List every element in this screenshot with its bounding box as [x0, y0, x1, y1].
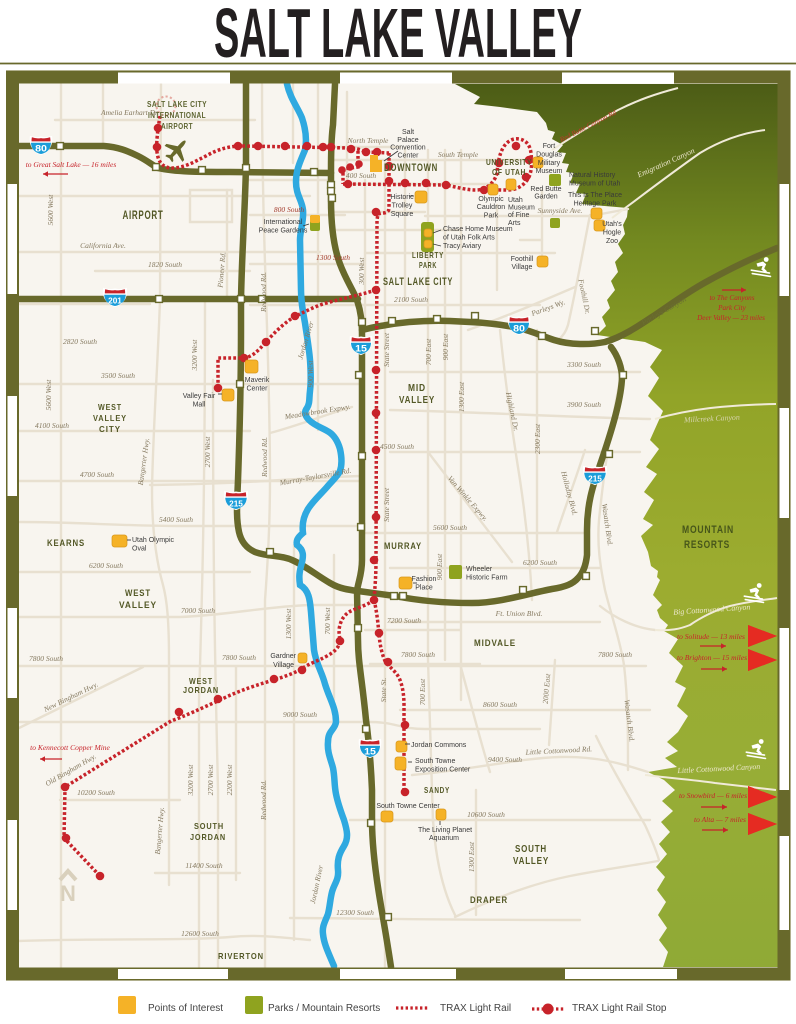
svg-text:MURRAY: MURRAY	[384, 541, 422, 551]
svg-text:215: 215	[588, 475, 602, 484]
svg-text:SALT LAKE VALLEY: SALT LAKE VALLEY	[214, 0, 582, 72]
svg-text:This Is The Place: This Is The Place	[568, 192, 622, 199]
svg-text:Redwood Rd.: Redwood Rd.	[260, 437, 269, 478]
svg-text:7800 South: 7800 South	[29, 654, 63, 663]
svg-text:South Towne: South Towne	[415, 758, 455, 765]
svg-text:3200 West: 3200 West	[190, 339, 199, 372]
svg-text:3300 South: 3300 South	[566, 360, 601, 369]
svg-text:900 West: 900 West	[306, 360, 315, 388]
svg-text:5400 South: 5400 South	[159, 515, 193, 524]
svg-text:Fashion: Fashion	[412, 576, 437, 583]
svg-text:1300 South: 1300 South	[316, 253, 350, 262]
svg-text:SANDY: SANDY	[424, 785, 450, 795]
svg-text:State Street: State Street	[382, 487, 391, 522]
svg-text:Fort: Fort	[543, 143, 556, 150]
svg-text:Peace Gardens: Peace Gardens	[259, 227, 308, 234]
svg-text:Center: Center	[246, 385, 268, 392]
svg-text:7800 South: 7800 South	[598, 650, 632, 659]
svg-text:700 West: 700 West	[323, 607, 332, 635]
svg-text:Natural History: Natural History	[569, 172, 616, 179]
svg-text:15: 15	[355, 344, 368, 355]
svg-text:State Street: State Street	[382, 332, 391, 367]
svg-text:7000 South: 7000 South	[181, 606, 215, 615]
svg-text:Maverik: Maverik	[245, 377, 270, 384]
svg-text:Gardner: Gardner	[270, 653, 296, 660]
svg-text:to Snowbird — 6 miles: to Snowbird — 6 miles	[679, 791, 747, 800]
svg-text:12600 South: 12600 South	[181, 929, 219, 938]
svg-text:700 East: 700 East	[418, 678, 427, 705]
svg-text:Arts: Arts	[508, 220, 521, 227]
svg-text:MOUNTAIN: MOUNTAIN	[682, 524, 734, 536]
svg-text:Convention: Convention	[390, 145, 426, 152]
svg-text:Historic Farm: Historic Farm	[466, 575, 508, 582]
svg-text:Exposition Center: Exposition Center	[415, 766, 471, 773]
svg-text:CITY: CITY	[99, 424, 121, 434]
svg-text:SOUTH: SOUTH	[515, 844, 547, 855]
svg-text:California Ave.: California Ave.	[80, 241, 126, 250]
svg-text:Jordan Commons: Jordan Commons	[411, 742, 467, 749]
svg-text:7200 South: 7200 South	[387, 616, 421, 625]
svg-text:VALLEY: VALLEY	[119, 600, 157, 610]
svg-text:DRAPER: DRAPER	[470, 895, 508, 905]
svg-text:10200 South: 10200 South	[77, 788, 115, 797]
svg-text:to Solitude — 13 miles: to Solitude — 13 miles	[677, 632, 745, 641]
svg-text:UNIVERSITY: UNIVERSITY	[486, 157, 532, 167]
svg-text:Historic: Historic	[390, 194, 414, 201]
svg-text:DOWNTOWN: DOWNTOWN	[384, 162, 438, 174]
svg-text:VALLEY: VALLEY	[93, 413, 127, 423]
svg-text:Wheeler: Wheeler	[466, 566, 493, 573]
svg-text:9000 South: 9000 South	[283, 710, 317, 719]
svg-text:MIDVALE: MIDVALE	[474, 638, 516, 648]
svg-text:RESORTS: RESORTS	[684, 539, 730, 551]
svg-text:4500 South: 4500 South	[380, 442, 414, 451]
svg-text:7800 South: 7800 South	[222, 653, 256, 662]
svg-text:Douglas: Douglas	[536, 151, 562, 158]
svg-text:Trolley: Trolley	[392, 202, 413, 209]
svg-text:State St.: State St.	[379, 678, 388, 703]
svg-text:KEARNS: KEARNS	[47, 538, 85, 548]
svg-text:of Fine: of Fine	[508, 212, 530, 219]
svg-text:to Kennecott Copper Mine: to Kennecott Copper Mine	[30, 743, 110, 752]
svg-text:Redwood Rd.: Redwood Rd.	[259, 780, 268, 821]
svg-text:7800 South: 7800 South	[401, 650, 435, 659]
svg-text:Center: Center	[397, 152, 419, 159]
svg-text:VALLEY: VALLEY	[399, 395, 435, 406]
svg-text:215: 215	[229, 500, 243, 509]
svg-text:80: 80	[513, 324, 525, 335]
svg-text:2820 South: 2820 South	[63, 337, 97, 346]
svg-text:OF UTAH: OF UTAH	[492, 167, 526, 177]
svg-text:Utah's: Utah's	[602, 221, 622, 228]
svg-text:TRAX Light Rail: TRAX Light Rail	[440, 1003, 511, 1014]
svg-text:Utah: Utah	[508, 197, 523, 204]
svg-text:900 East: 900 East	[441, 333, 450, 360]
svg-text:2300 East: 2300 East	[533, 423, 542, 454]
svg-text:Hogle: Hogle	[603, 229, 621, 236]
svg-text:SALT LAKE CITY: SALT LAKE CITY	[383, 276, 453, 288]
svg-text:VALLEY: VALLEY	[513, 856, 549, 867]
svg-text:Parks / Mountain Resorts: Parks / Mountain Resorts	[268, 1003, 380, 1014]
svg-text:4100 South: 4100 South	[35, 421, 69, 430]
svg-text:Foothill: Foothill	[511, 256, 534, 263]
svg-text:2700 West: 2700 West	[206, 764, 215, 796]
svg-text:400 South: 400 South	[346, 171, 376, 180]
svg-text:to Great Salt Lake — 16 miles: to Great Salt Lake — 16 miles	[26, 160, 117, 169]
svg-text:Park: Park	[484, 212, 499, 219]
svg-text:WEST: WEST	[98, 402, 122, 412]
svg-text:5600 South: 5600 South	[433, 523, 467, 532]
svg-text:Museum: Museum	[508, 205, 535, 212]
svg-text:6200 South: 6200 South	[89, 561, 123, 570]
svg-text:International: International	[264, 219, 303, 226]
svg-text:12300 South: 12300 South	[336, 908, 374, 917]
svg-text:2700 West: 2700 West	[203, 436, 212, 468]
svg-text:80: 80	[35, 144, 47, 155]
svg-text:5600 West: 5600 West	[44, 379, 53, 411]
svg-text:RIVERTON: RIVERTON	[218, 951, 264, 961]
svg-text:11400 South: 11400 South	[185, 861, 222, 870]
svg-text:JORDAN: JORDAN	[183, 685, 219, 695]
svg-text:Palace: Palace	[397, 137, 419, 144]
svg-text:300 West: 300 West	[357, 257, 366, 286]
svg-text:JORDAN: JORDAN	[190, 832, 226, 842]
svg-text:to The Canyons: to The Canyons	[709, 294, 754, 302]
svg-text:Cauldron: Cauldron	[477, 204, 506, 211]
svg-text:of Utah Folk Arts: of Utah Folk Arts	[443, 234, 495, 241]
svg-text:Points of Interest: Points of Interest	[148, 1003, 223, 1014]
svg-text:15: 15	[364, 747, 377, 758]
svg-text:Village: Village	[512, 264, 533, 271]
svg-text:Oval: Oval	[132, 545, 147, 552]
svg-text:Valley Fair: Valley Fair	[183, 393, 216, 400]
svg-text:Salt: Salt	[402, 129, 414, 136]
svg-text:Square: Square	[391, 211, 414, 218]
svg-text:Utah Olympic: Utah Olympic	[132, 537, 175, 544]
svg-text:Red Butte: Red Butte	[530, 186, 561, 193]
svg-text:700 East: 700 East	[424, 338, 433, 365]
svg-text:Deer Valley — 23 miles: Deer Valley — 23 miles	[696, 314, 765, 322]
svg-text:PARK: PARK	[419, 260, 437, 270]
svg-text:AIRPORT: AIRPORT	[161, 122, 193, 131]
svg-text:Military: Military	[538, 160, 561, 167]
svg-text:1300 East: 1300 East	[467, 841, 476, 872]
svg-text:1300 West: 1300 West	[284, 608, 293, 640]
svg-text:1300 East: 1300 East	[457, 381, 466, 412]
svg-text:2100 South: 2100 South	[394, 295, 428, 304]
svg-text:Ft. Union Blvd.: Ft. Union Blvd.	[495, 609, 543, 618]
svg-text:800 South: 800 South	[274, 205, 304, 214]
svg-text:Amelia Earhart Dr.: Amelia Earhart Dr.	[100, 108, 159, 117]
svg-text:Village: Village	[273, 662, 294, 669]
svg-text:Tracy Aviary: Tracy Aviary	[443, 243, 482, 250]
svg-text:Place: Place	[415, 584, 433, 591]
svg-text:WEST: WEST	[125, 588, 151, 598]
svg-text:Olympic: Olympic	[478, 196, 504, 203]
svg-text:Mall: Mall	[193, 401, 206, 408]
svg-text:201: 201	[108, 297, 122, 306]
svg-text:Museum: Museum	[536, 168, 563, 175]
svg-text:North Temple: North Temple	[347, 136, 389, 145]
svg-text:9400 South: 9400 South	[488, 755, 522, 764]
svg-text:5600 West: 5600 West	[46, 194, 55, 226]
svg-text:SOUTH: SOUTH	[194, 821, 224, 831]
svg-text:Zoo: Zoo	[606, 238, 618, 245]
svg-text:6200 South: 6200 South	[523, 558, 557, 567]
svg-text:Chase Home Museum: Chase Home Museum	[443, 226, 513, 233]
svg-text:3200 West: 3200 West	[186, 764, 195, 797]
svg-text:Museum of Utah: Museum of Utah	[569, 180, 620, 187]
svg-text:1820 South: 1820 South	[148, 260, 182, 269]
svg-text:8600 South: 8600 South	[483, 700, 517, 709]
svg-text:AIRPORT: AIRPORT	[123, 210, 164, 222]
svg-text:South Towne Center: South Towne Center	[376, 803, 440, 810]
svg-text:to Brighton — 15 miles: to Brighton — 15 miles	[677, 653, 747, 662]
svg-text:Heritage Park: Heritage Park	[574, 200, 617, 207]
svg-text:2200 West: 2200 West	[225, 764, 234, 796]
svg-text:to Alta — 7 miles: to Alta — 7 miles	[694, 815, 746, 824]
svg-text:TRAX Light Rail Stop: TRAX Light Rail Stop	[572, 1003, 667, 1014]
svg-text:Aquarium: Aquarium	[429, 835, 459, 842]
svg-text:MID: MID	[408, 383, 426, 394]
svg-text:N: N	[60, 881, 76, 906]
svg-text:Garden: Garden	[534, 194, 557, 201]
svg-text:10600 South: 10600 South	[467, 810, 505, 819]
svg-text:South Temple: South Temple	[438, 150, 479, 159]
svg-text:4700 South: 4700 South	[80, 470, 114, 479]
svg-text:3900 South: 3900 South	[566, 400, 601, 409]
svg-text:LIBERTY: LIBERTY	[412, 250, 444, 260]
svg-text:The Living Planet: The Living Planet	[418, 827, 472, 834]
svg-text:3500 South: 3500 South	[100, 371, 135, 380]
svg-text:Redwood Rd.: Redwood Rd.	[259, 272, 268, 313]
svg-text:Park City: Park City	[717, 304, 747, 312]
